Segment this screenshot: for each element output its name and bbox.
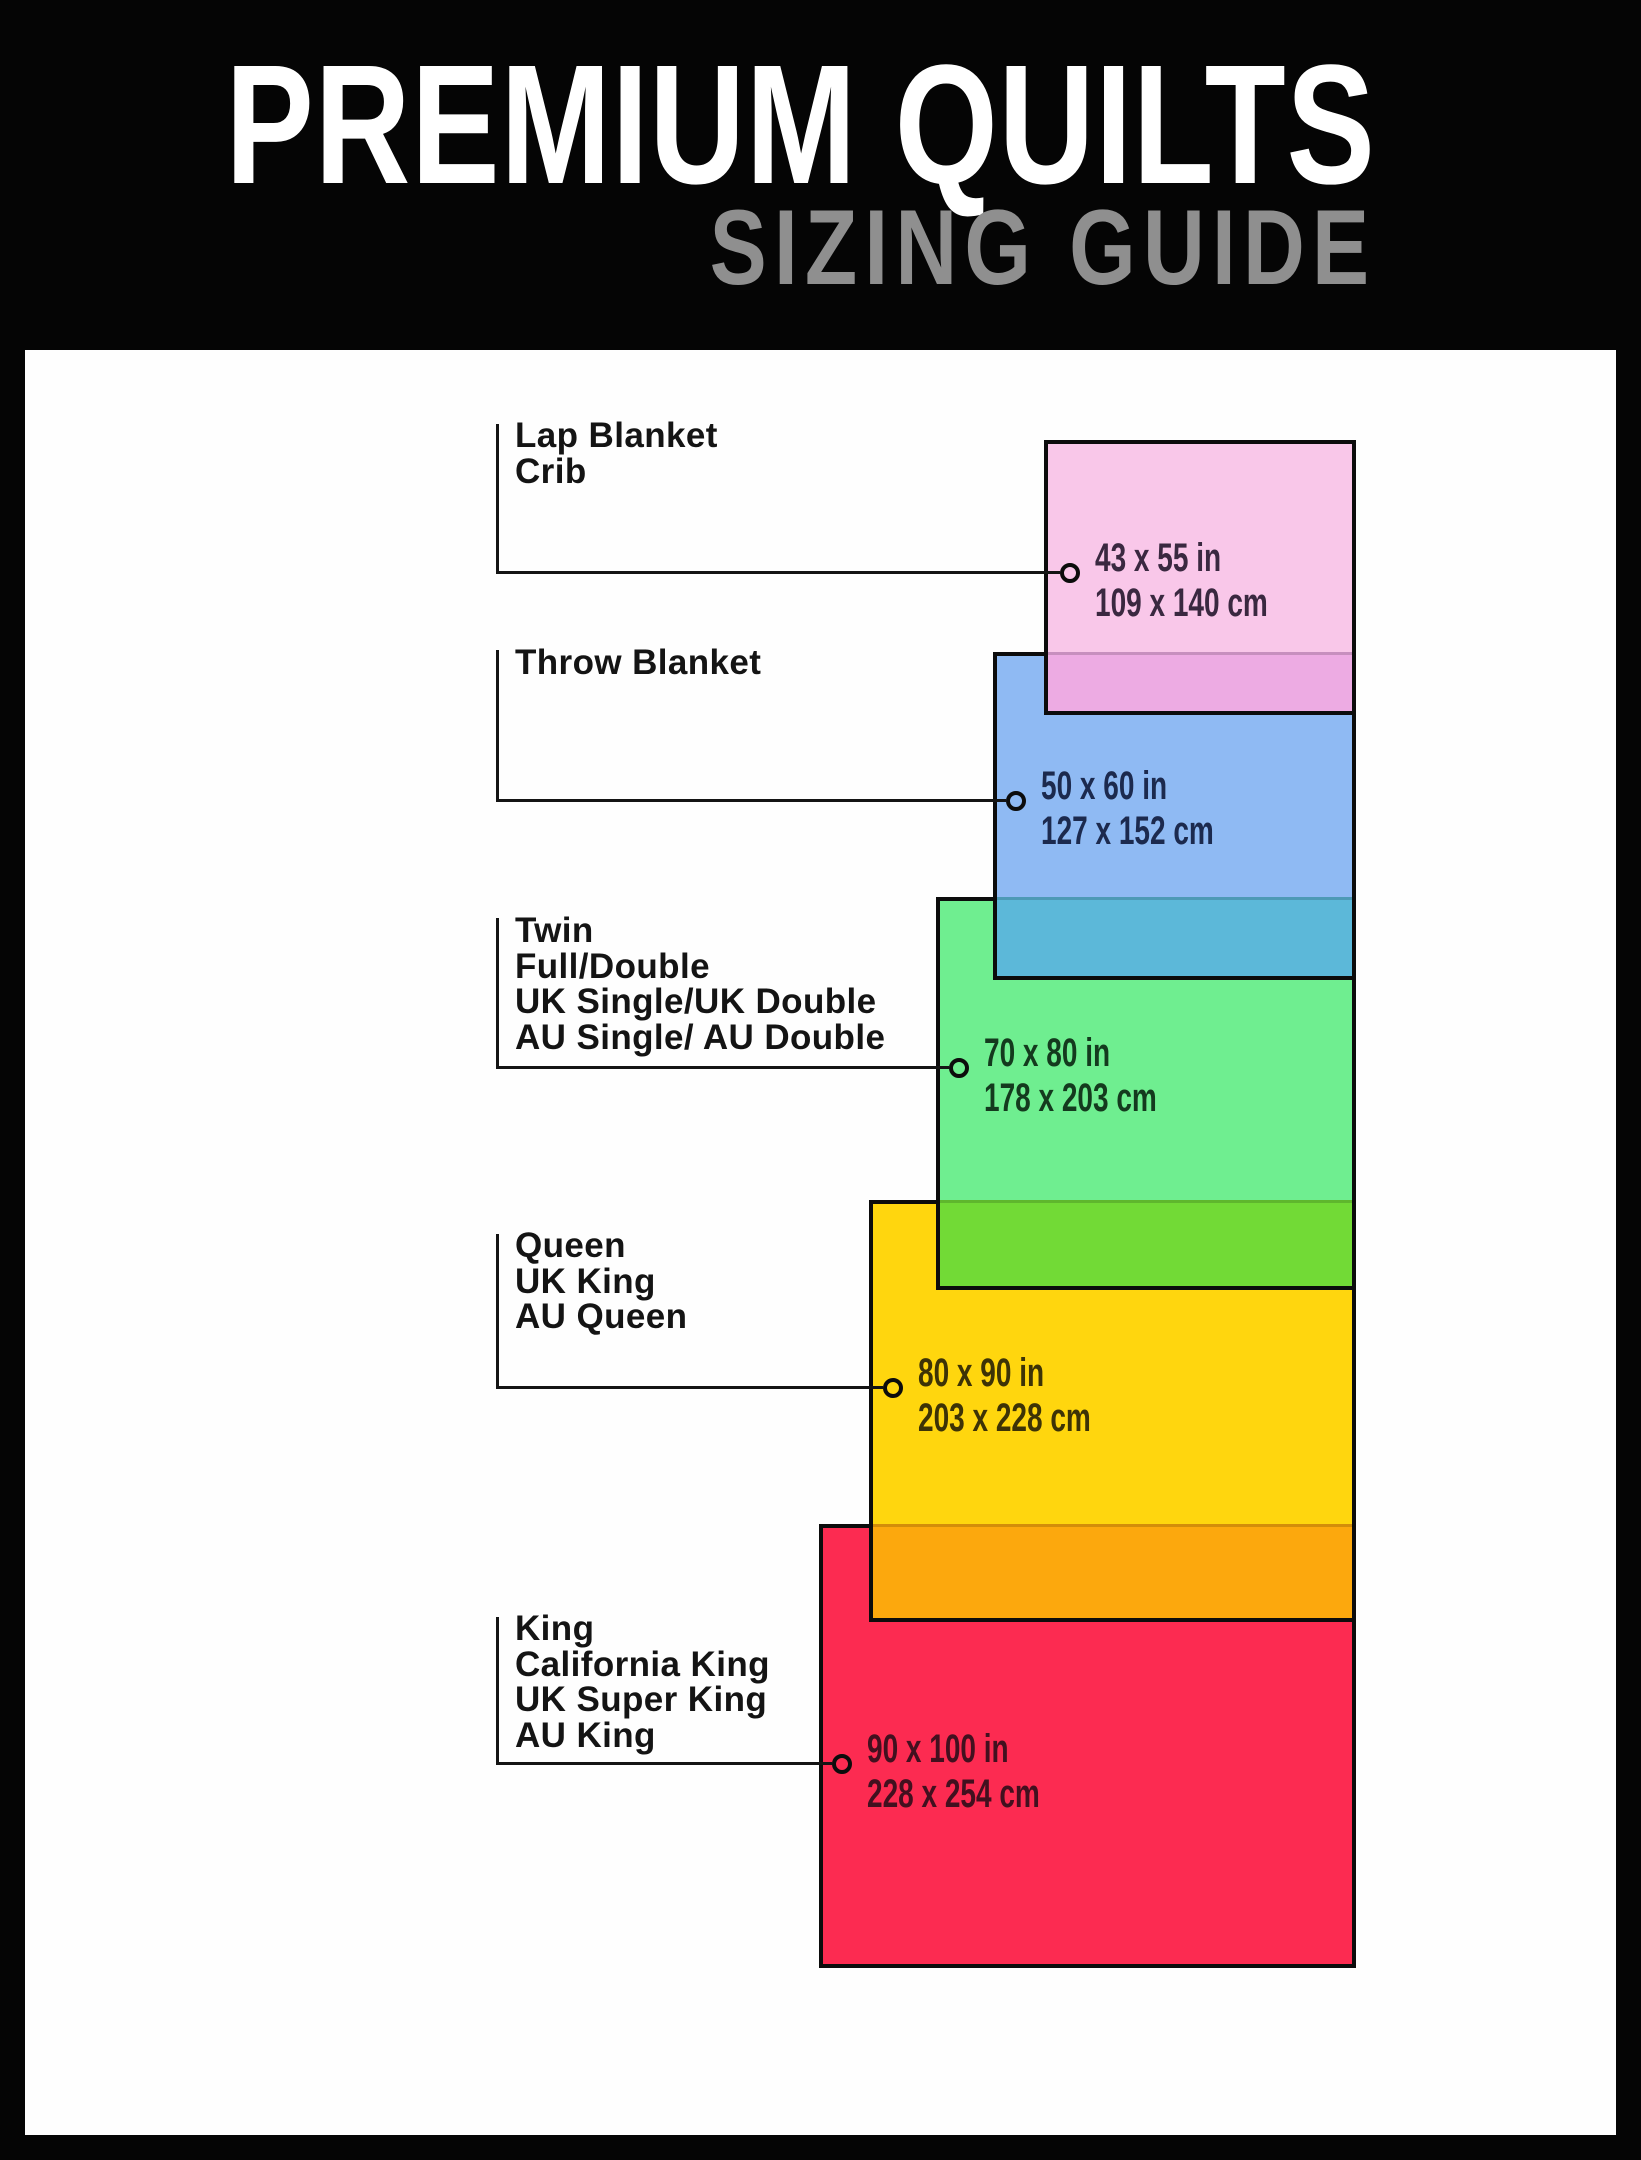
overlap-queen-king [873,1524,1352,1618]
leader-dot-crib [1060,563,1080,583]
leader-line-vertical-king [496,1617,499,1764]
dimension-cm-king: 228 x 254 cm [867,1774,1040,1814]
size-label: Lap Blanket [515,418,718,454]
size-label-group-crib: Lap Blanket Crib [515,418,718,489]
page-title: PREMIUM QUILTS [226,40,1376,210]
size-label: AU King [515,1718,770,1754]
size-label-group-king: King California King UK Super King AU Ki… [515,1611,770,1753]
leader-line-vertical-twin [496,918,499,1068]
quilt-sizing-infographic: PREMIUM QUILTS SIZING GUIDE Lap Blanket … [0,0,1641,2160]
leader-dot-king [832,1754,852,1774]
leader-dot-twin [949,1058,969,1078]
size-label-group-twin: Twin Full/Double UK Single/UK Double AU … [515,913,885,1055]
leader-line-vertical-crib [496,424,499,573]
dimension-inches-queen: 80 x 90 in [918,1353,1044,1393]
dimension-cm-twin: 178 x 203 cm [984,1078,1157,1118]
size-label: California King [515,1647,770,1683]
dimension-cm-queen: 203 x 228 cm [918,1398,1091,1438]
leader-line-horizontal-queen [496,1386,883,1389]
leader-line-vertical-throw [496,650,499,801]
leader-dot-queen [883,1378,903,1398]
size-label: Twin [515,913,885,949]
leader-line-horizontal-throw [496,799,1006,802]
leader-dot-throw [1006,791,1026,811]
dimension-inches-throw: 50 x 60 in [1041,766,1167,806]
page-subtitle: SIZING GUIDE [709,194,1376,301]
leader-line-horizontal-crib [496,571,1060,574]
size-label: AU Single/ AU Double [515,1020,885,1056]
dimension-cm-throw: 127 x 152 cm [1041,811,1214,851]
dimension-inches-king: 90 x 100 in [867,1729,1009,1769]
leader-line-horizontal-twin [496,1066,949,1069]
dimension-inches-twin: 70 x 80 in [984,1033,1110,1073]
size-label: UK Single/UK Double [515,984,885,1020]
overlap-throw-twin [997,897,1352,976]
size-label: Full/Double [515,949,885,985]
size-label: UK Super King [515,1682,770,1718]
dimension-cm-crib: 109 x 140 cm [1095,583,1268,623]
size-label: UK King [515,1264,687,1300]
size-label-group-queen: Queen UK King AU Queen [515,1228,687,1335]
leader-line-horizontal-king [496,1762,832,1765]
size-label: Crib [515,454,718,490]
size-label: Throw Blanket [515,645,761,681]
overlap-twin-queen [940,1200,1352,1286]
overlap-crib-throw [1048,652,1352,711]
size-label: AU Queen [515,1299,687,1335]
size-label-group-throw: Throw Blanket [515,645,761,681]
size-label: Queen [515,1228,687,1264]
size-label: King [515,1611,770,1647]
dimension-inches-crib: 43 x 55 in [1095,538,1221,578]
leader-line-vertical-queen [496,1234,499,1388]
